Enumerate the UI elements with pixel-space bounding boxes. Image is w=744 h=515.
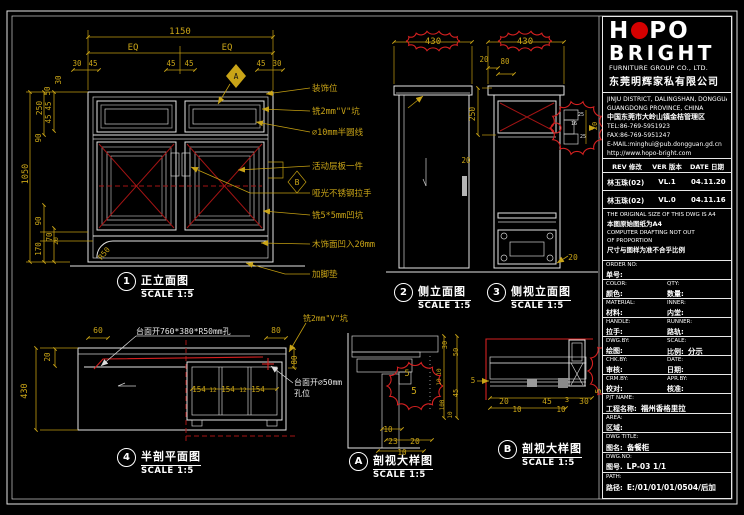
field-label-cn: 材料: — [606, 308, 667, 317]
dim-label: 30 — [579, 397, 589, 406]
rev-version: VL.1 — [646, 178, 687, 188]
field-label-en: MATERIAL: — [606, 300, 667, 308]
view-number: 2 — [394, 283, 413, 302]
field-label-cn: 比例:分示 — [667, 346, 728, 355]
field-label-cn: 审核: — [606, 365, 667, 374]
field-label-cn: 颜色: — [606, 289, 667, 298]
dim-label: 50 — [43, 86, 52, 96]
company-name-en: FURNITURE GROUP CO., LTD. — [609, 64, 727, 72]
company-logo: HPO BRIGHT FURNITURE GROUP CO., LTD. 东莞明… — [603, 17, 731, 93]
field-label-cn: 日期: — [667, 365, 728, 374]
field-label-en: DATE: — [667, 357, 728, 365]
dim-label: 45 — [44, 114, 53, 123]
fax-line: FAX:86-769-5951247 — [607, 131, 727, 140]
field-label-en: AREA: — [606, 415, 728, 423]
dim-label: 木饰面凹入20mm — [312, 239, 375, 250]
view-title-3: 3 侧视立面图 SCALE 1:5 — [487, 283, 571, 311]
view-title-1: 1 正立面图 SCALE 1:5 — [117, 272, 194, 300]
phone-line: TEL:86-769-5951923 — [607, 122, 727, 131]
dim-label: 1050 — [21, 164, 31, 184]
dim-label: 25 — [578, 112, 584, 118]
dim-label: 12 — [239, 387, 247, 394]
view-title-4: 4 半剖平面图 SCALE 1:5 — [117, 448, 201, 476]
viewA-section-detail — [348, 333, 457, 451]
field-label-cn: 图名:备餐柜 — [606, 442, 728, 451]
drawing-title-value: 备餐柜 — [627, 443, 650, 451]
revision-row: 林玉珠(02) VL.0 04.11.16 — [603, 191, 731, 209]
dim-label: 430 — [20, 383, 30, 398]
dim-label: 16 — [571, 121, 577, 127]
dim-label: 5 — [471, 376, 476, 385]
field-order-no: ORDER NO: 单号: — [603, 261, 731, 280]
dim-label: 铣5*5mm凹坑 — [312, 210, 364, 221]
field-label-cn: 路径:E:/01/01/01/0504/后加 — [606, 482, 728, 491]
file-path-value: E:/01/01/01/0504/后加 — [627, 483, 716, 491]
dim-label: 加脚垫 — [312, 269, 338, 280]
dim-label: 30 — [441, 341, 449, 349]
view-scale: SCALE 1:5 — [373, 470, 433, 480]
view-scale: SCALE 1:5 — [141, 466, 201, 476]
dim-label: 90 — [34, 216, 43, 226]
email-line: E-MAIL:minghui@pub.dongguan.gd.cn — [607, 140, 727, 149]
dim-label: 45 — [166, 59, 175, 68]
dim-label: 10 — [436, 378, 443, 386]
dim-label: 5 — [404, 369, 409, 379]
view4-plan — [36, 323, 306, 444]
logo-red-dot-icon — [631, 22, 648, 39]
view-name: 正立面图 — [141, 272, 194, 290]
dim-label: 铣2mm"V"坑 — [312, 106, 360, 117]
dim-label: 45 — [452, 389, 460, 397]
dim-label: 10 — [383, 425, 393, 434]
revision-row: 林玉珠(02) VL.1 04.11.20 — [603, 173, 731, 191]
view-title-2: 2 侧立面图 SCALE 1:5 — [394, 283, 471, 311]
field-crmby-aprby: CRM.BY: APR.BY: 校对: 核准: — [603, 375, 731, 394]
dim-label: 154 — [251, 385, 265, 394]
dim-label: 活动层板一件 — [312, 161, 364, 172]
dim-label: 154 — [221, 385, 235, 394]
address-line: GUANGDONG PROVINCE, CHINA — [607, 104, 727, 113]
dim-label: 30 — [272, 59, 282, 68]
dim-label: 23 — [388, 437, 398, 446]
dim-label: 80 — [290, 355, 299, 365]
field-label-en: HANDLE: — [606, 319, 667, 327]
dim-label: 20 — [410, 437, 420, 446]
field-label-en: CRM.BY: — [606, 376, 667, 384]
field-label-cn: 内堂: — [667, 308, 728, 317]
view-number: 1 — [117, 272, 136, 291]
field-label-en: APR.BY: — [667, 376, 728, 384]
dim-label: B — [295, 178, 300, 187]
dim-label: 60 — [93, 326, 103, 335]
field-label-cn: 路轨: — [667, 327, 728, 336]
logo-text: BRIGHT — [609, 43, 727, 63]
dim-label: 45 — [184, 59, 193, 68]
view-title-B: B 剖视大样图 SCALE 1:5 — [498, 440, 582, 468]
view-scale: SCALE 1:5 — [418, 301, 471, 311]
dim-label: 80 — [271, 326, 281, 335]
dim-label: 20 — [568, 253, 578, 262]
dim-label: 30 — [54, 75, 63, 85]
rev-version: VL.0 — [646, 196, 687, 206]
company-address: JINJU DISTRICT, DALINGSHAN, DONGGUAN GUA… — [603, 93, 731, 159]
view-title-A: A 剖视大样图 SCALE 1:5 — [349, 452, 433, 480]
dim-label: 10 — [512, 405, 522, 414]
revision-header: REV 修改 VER 版本 DATE 日期 — [603, 159, 731, 173]
field-dwgby-scale: DWG.BY: SCALE: 绘图: 比例:分示 — [603, 337, 731, 356]
field-label-en: PATH: — [606, 474, 728, 482]
note-line: 尺寸与图样为准不合乎比例 — [607, 245, 727, 255]
field-label-en: DWG.NO: — [606, 454, 728, 462]
dim-label: 430 — [517, 37, 533, 47]
view3-section-elevation — [478, 42, 596, 268]
field-label-cn: 路径: — [606, 484, 623, 491]
dim-label: 孔位 — [294, 388, 310, 398]
dim-label: 哑光不锈钢拉手 — [312, 188, 372, 199]
rev-name: 林玉珠(02) — [605, 196, 646, 206]
view-name: 侧立面图 — [418, 283, 471, 301]
field-color-qty: COLOR: QTY: 颜色: 数量: — [603, 280, 731, 299]
field-label-en: RUNNER: — [667, 319, 728, 327]
dim-label: 铣2mm"V"坑 — [303, 313, 348, 323]
dim-label: 1150 — [169, 27, 191, 37]
field-project-name: PJT NAME: 工程名称:福州香格里拉 — [603, 394, 731, 414]
company-name-cn: 东莞明辉家私有限公司 — [609, 73, 727, 88]
dim-label: 台面开∅50mm — [294, 377, 342, 387]
field-label-cn: 绘图: — [606, 346, 667, 355]
scale-value: 分示 — [688, 347, 703, 355]
view-name: 剖视大样图 — [522, 440, 582, 458]
rev-name: 林玉珠(02) — [605, 178, 646, 188]
website-line: http://www.hopo-bright.com — [607, 149, 727, 158]
rev-date: 04.11.16 — [688, 196, 729, 206]
field-dwg-no: DWG.NO: 图号.LP-03 1/1 — [603, 453, 731, 473]
dim-label: R50 — [96, 245, 112, 262]
dim-label: 20 — [461, 156, 471, 165]
view-scale: SCALE 1:5 — [522, 458, 582, 468]
dim-label: 25 — [580, 134, 586, 140]
dim-label: 20 — [52, 237, 60, 245]
mini-detail — [551, 110, 596, 144]
dim-label: 80 — [500, 57, 510, 66]
dim-label: 20 — [499, 397, 509, 406]
dim-label: 170 — [34, 242, 43, 256]
field-label-cn: 核准: — [667, 384, 728, 393]
dim-label: 20 — [43, 352, 52, 362]
view-scale: SCALE 1:5 — [511, 301, 571, 311]
dim-label: 250 — [468, 107, 477, 122]
dim-label: 45 — [88, 59, 97, 68]
field-label-en: ORDER NO: — [606, 262, 728, 270]
dim-label: 20 — [479, 55, 489, 64]
address-line: JINJU DISTRICT, DALINGSHAN, DONGGUAN — [607, 95, 727, 104]
note-line: THE ORIGINAL SIZE OF THIS DWG IS A4 — [607, 211, 727, 219]
project-name-value: 福州香格里拉 — [641, 404, 686, 412]
dim-label: 430 — [425, 37, 441, 47]
dim-label: 台面开760*380*R50mm孔 — [136, 326, 231, 336]
field-label-cn: 比例: — [667, 348, 684, 355]
view-number: A — [349, 452, 368, 471]
dim-label: EQ — [128, 43, 139, 53]
dim-label: 30 — [72, 59, 82, 68]
title-block: HPO BRIGHT FURNITURE GROUP CO., LTD. 东莞明… — [602, 16, 732, 499]
dim-label: ∅10mm半圆线 — [312, 127, 364, 138]
dim-label: 100 — [439, 399, 446, 410]
note-line: OF PROPORTION — [607, 237, 727, 245]
dim-label: 154 — [192, 385, 206, 394]
rev-col: VER 版本 — [647, 161, 687, 171]
handle-hatch — [171, 153, 179, 176]
field-label-en: COLOR: — [606, 281, 667, 289]
dim-label: 45 — [542, 397, 552, 406]
field-material-inner: MATERIAL: INNER: 材料: 内堂: — [603, 299, 731, 318]
dim-label: 3 — [565, 396, 569, 404]
field-label-cn: 校对: — [606, 384, 667, 393]
field-handle-runner: HANDLE: RUNNER: 拉手: 路轨: — [603, 318, 731, 337]
field-label-en: CHK.BY: — [606, 357, 667, 365]
field-label-cn: 拉手: — [606, 327, 667, 336]
address-line: 中国东莞市大岭山镇金桔管理区 — [607, 113, 727, 122]
field-dwg-title: DWG TITLE: 图名:备餐柜 — [603, 433, 731, 453]
dim-label: 45 — [44, 101, 53, 110]
dim-label: 5 — [411, 386, 417, 397]
field-label-cn: 区域: — [606, 423, 728, 432]
field-path: PATH: 路径:E:/01/01/01/0504/后加 — [603, 473, 731, 492]
field-label-cn: 单号: — [606, 270, 728, 279]
view-number: B — [498, 440, 517, 459]
side-handle — [462, 176, 467, 196]
dim-label: A — [234, 72, 239, 81]
field-label-cn: 图号. — [606, 463, 623, 471]
cad-drawing-sheet: 1150EQEQ30454545453030504545250901050907… — [0, 0, 744, 515]
view-name: 剖视大样图 — [373, 452, 433, 470]
field-label-en: DWG.BY: — [606, 338, 667, 346]
dim-label: 装饰位 — [312, 83, 338, 94]
field-label-en: INNER: — [667, 300, 728, 308]
field-label-en: QTY: — [667, 281, 728, 289]
dim-label: 250 — [35, 101, 44, 116]
view2-side-elevation — [386, 42, 598, 272]
dim-label: 20 — [591, 122, 599, 130]
view-name: 半剖平面图 — [141, 448, 201, 466]
dim-label: 10 — [436, 368, 443, 376]
field-label-en: SCALE: — [667, 338, 728, 346]
field-label-cn: 图名: — [606, 444, 623, 451]
dim-label: 10 — [447, 411, 454, 419]
field-chkby-date: CHK.BY: DATE: 审核: 日期: — [603, 356, 731, 375]
field-label-cn: 工程名称: — [606, 405, 637, 412]
view-number: 3 — [487, 283, 506, 302]
note-line: COMPUTER DRAFTING NOT OUT — [607, 229, 727, 237]
rev-col: DATE 日期 — [687, 161, 727, 171]
view-scale: SCALE 1:5 — [141, 290, 194, 300]
view-name: 侧视立面图 — [511, 283, 571, 301]
field-area: AREA: 区域: — [603, 414, 731, 433]
view-number: 4 — [117, 448, 136, 467]
note-line: 本图原始图纸为A4 — [607, 219, 727, 229]
drawing-number-value: LP-03 1/1 — [627, 462, 666, 471]
field-label-en: DWG TITLE: — [606, 434, 728, 442]
field-label-en: PJT NAME: — [606, 395, 728, 403]
field-label-cn: 工程名称:福州香格里拉 — [606, 403, 728, 412]
drawing-notes: THE ORIGINAL SIZE OF THIS DWG IS A4 本图原始… — [603, 209, 731, 261]
field-label-cn: 图号.LP-03 1/1 — [606, 462, 728, 471]
dim-label: 90 — [34, 133, 43, 143]
dim-label: EQ — [222, 43, 233, 53]
annotation-leaders — [191, 88, 310, 274]
dim-label: 12 — [209, 387, 217, 394]
field-label-cn: 数量: — [667, 289, 728, 298]
dim-label: 10 — [556, 405, 566, 414]
door-swing-marks — [99, 144, 262, 228]
dim-label: 45 — [256, 59, 265, 68]
dim-label: 50 — [452, 348, 460, 356]
rev-col: REV 修改 — [607, 161, 647, 171]
rev-date: 04.11.20 — [688, 178, 729, 188]
